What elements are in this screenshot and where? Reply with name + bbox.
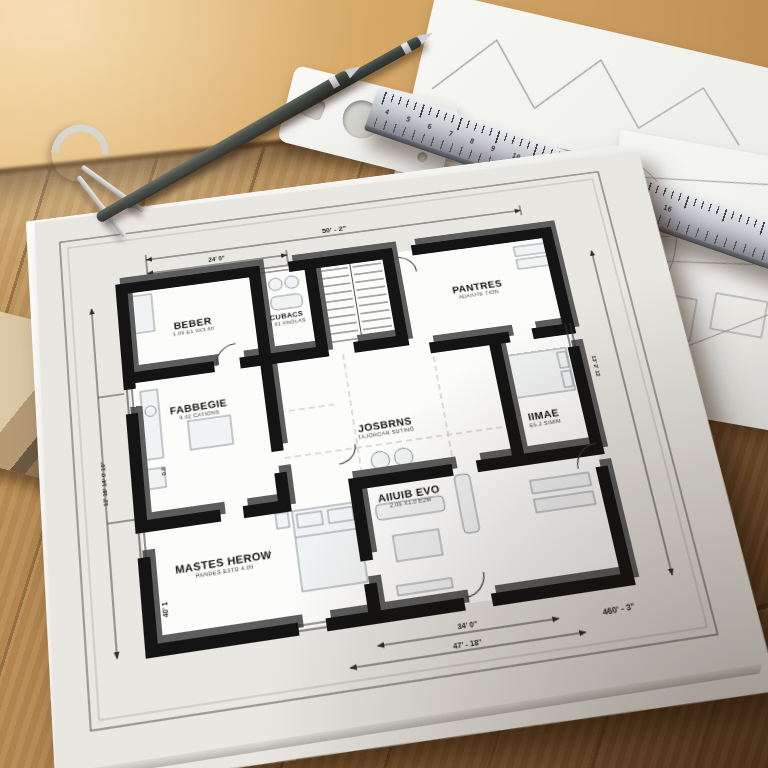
template-dot-hole [416,151,428,163]
dim-left-inner: 0.0 [160,467,167,476]
floor-plan-paper: BEBER 1.09 E1 9X3.60 CUBACS 8.91 ANGLAS … [26,145,757,768]
desk-scene: 4 5 6 7 8 9 10 11 12 13 14 15 16 [0,0,768,768]
dim-left-lower: 40' 1 [160,602,169,618]
